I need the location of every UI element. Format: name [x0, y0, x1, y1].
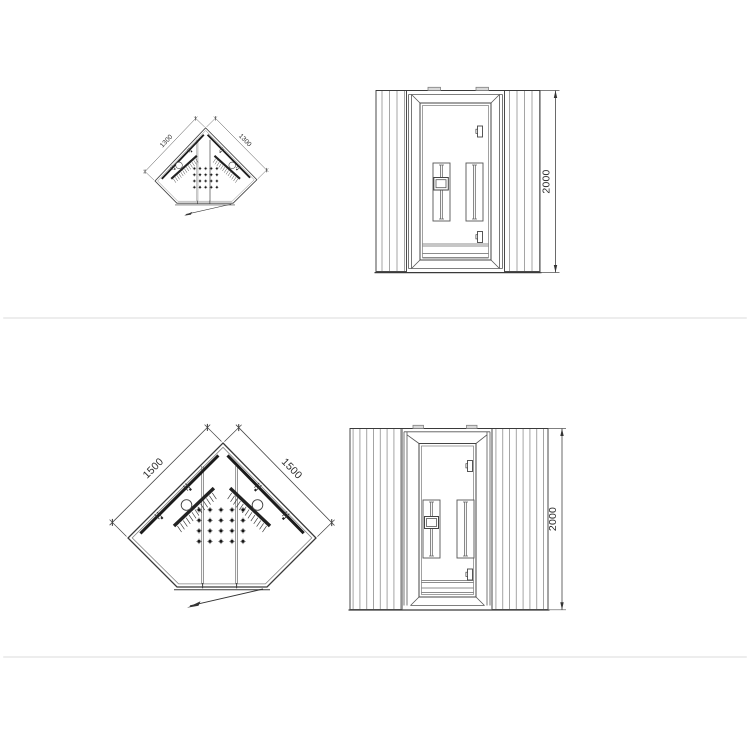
- heater-panel-left: [433, 163, 450, 221]
- left-plank-panel: [376, 91, 407, 272]
- dim-label-height: 2000: [547, 507, 559, 531]
- dim-label-height: 2000: [541, 169, 553, 193]
- plan-door-swing: [184, 204, 231, 216]
- heater-panel-right: [457, 500, 474, 558]
- front-dimension: 2000: [547, 429, 566, 610]
- section-divider-1: [3, 317, 747, 319]
- front-door: [420, 103, 491, 260]
- control-box: [425, 517, 439, 529]
- front-view-1300: 2000: [370, 85, 566, 279]
- front-door: [419, 444, 476, 598]
- dim-label-width-right: 1300: [237, 133, 253, 149]
- plan-jet-grid: [194, 505, 249, 547]
- technical-drawing-page: 1300 1300: [0, 0, 750, 750]
- front-view-1500: 2000: [344, 421, 574, 613]
- plan-jet-grid: [192, 165, 220, 190]
- top-view-1500: 1500 1500: [100, 418, 345, 614]
- front-dimension: 2000: [540, 91, 560, 273]
- dim-label-width-right: 1500: [279, 456, 304, 482]
- dim-label-width-left: 1500: [141, 456, 167, 482]
- right-plank-panel: [505, 91, 541, 272]
- right-plank-panel: [492, 429, 548, 610]
- plan-door-swing: [187, 589, 263, 608]
- control-box: [434, 178, 449, 191]
- left-plank-panel: [350, 429, 402, 610]
- top-view-1300: 1300 1300: [135, 80, 360, 252]
- section-divider-2: [3, 656, 747, 658]
- heater-panel-right: [466, 163, 483, 221]
- dim-label-width-left: 1300: [159, 133, 175, 149]
